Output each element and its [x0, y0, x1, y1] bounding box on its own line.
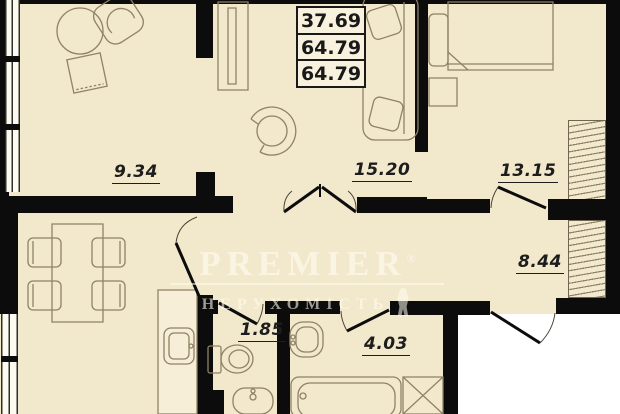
- area-value: 64.79: [296, 59, 366, 88]
- bath-sink: [290, 322, 323, 357]
- armchair: [89, 0, 147, 48]
- sofa: [363, 0, 418, 140]
- area-value: 37.69: [296, 6, 366, 35]
- area-summary-table: 37.69 64.79 64.79: [296, 6, 366, 88]
- door-leaf-entrance: [491, 312, 540, 343]
- wc-sink: [233, 388, 273, 414]
- tall-cabinet: [218, 2, 248, 90]
- dining-chair: [28, 238, 61, 267]
- room-area-label-living: 15.20: [352, 162, 412, 182]
- room-area-label-top-left: 9.34: [112, 164, 160, 184]
- door-swing-arc: [491, 187, 498, 208]
- dining-chair: [92, 238, 125, 267]
- floor-plan: 37.69 64.79 64.79 9.34 15.20 13.15 8.44 …: [0, 0, 620, 414]
- door-leaf-bathroom: [347, 310, 389, 331]
- room-area-label-bathroom: 4.03: [362, 336, 410, 356]
- dining-chair: [28, 281, 61, 310]
- area-value: 64.79: [296, 33, 366, 62]
- room-area-label-bedroom: 13.15: [498, 163, 558, 183]
- tub-chair: [251, 107, 296, 155]
- door-leaf-dining: [176, 243, 199, 296]
- door-leaf-living-left: [284, 187, 319, 212]
- shower-unit: [403, 377, 443, 414]
- kitchen-counter: [158, 290, 197, 414]
- dining-chair: [92, 281, 125, 310]
- door-swing-arc: [341, 311, 347, 331]
- door-leaf-living-right: [322, 187, 356, 212]
- round-table: [57, 8, 103, 54]
- nightstand: [429, 78, 457, 106]
- bed: [429, 2, 553, 70]
- bathtub: [291, 377, 401, 414]
- room-area-label-hallway: 8.44: [516, 254, 564, 274]
- room-area-label-wc: 1.85: [238, 322, 286, 342]
- door-swing-arc: [540, 313, 555, 343]
- side-chair: [67, 53, 107, 93]
- door-leaf-bedroom: [498, 187, 546, 208]
- toilet: [208, 345, 253, 373]
- door-swing-arc: [176, 217, 197, 243]
